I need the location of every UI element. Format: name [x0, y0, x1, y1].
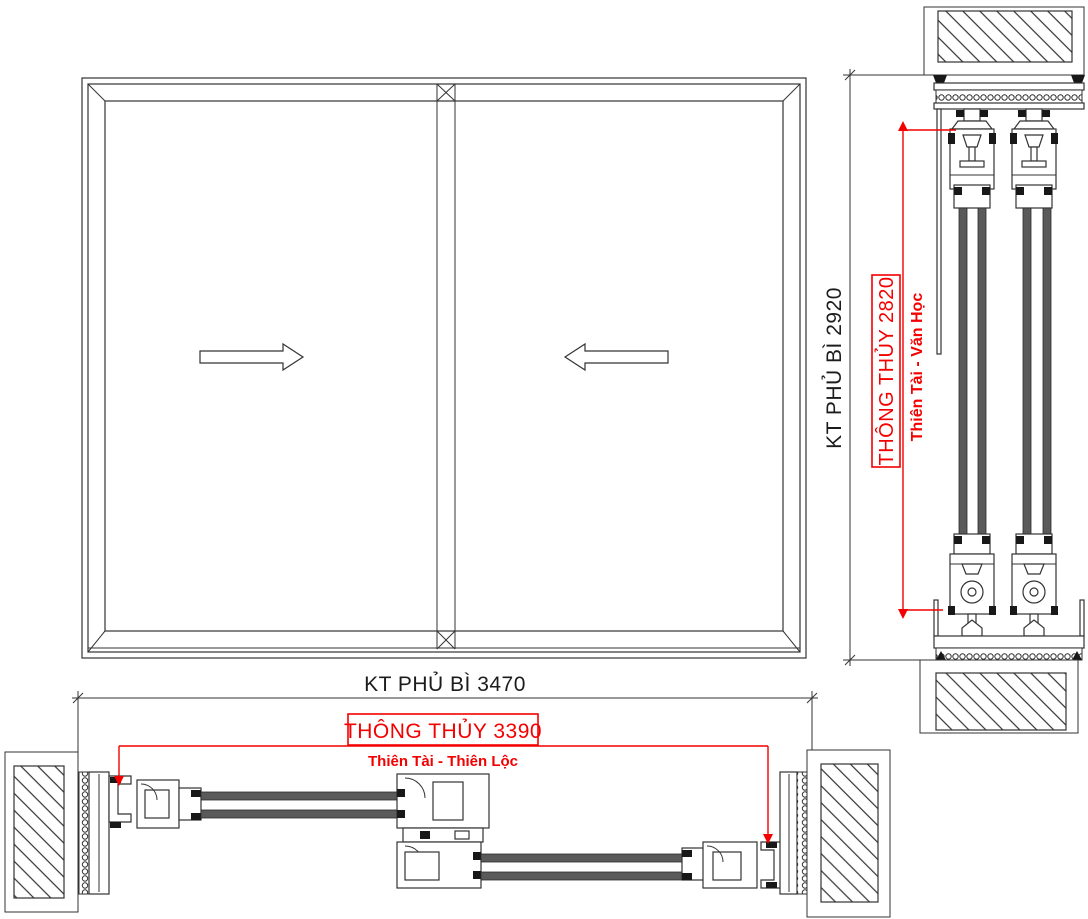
horizontal-section-view	[5, 750, 890, 917]
arrow-right-icon	[200, 344, 303, 370]
top-carriage-inner	[1010, 109, 1058, 208]
bottom-roller-inner	[1010, 534, 1058, 631]
frame-inner-opening	[105, 101, 783, 631]
wall-block-left	[5, 752, 78, 912]
frame-outer-edge	[82, 78, 806, 658]
glass-panes-section	[959, 208, 1051, 534]
clear-height-label: THÔNG THỦY 2820	[874, 276, 898, 465]
wall-block-top	[924, 7, 1084, 75]
meeting-stiles-interlock	[397, 774, 489, 888]
glass-panel-1	[201, 792, 397, 818]
technical-drawing-canvas: KT PHỦ BÌ 3470 THÔNG THỦY 3390 Thiên Tài…	[0, 0, 1088, 919]
wall-block-bottom	[920, 660, 1078, 733]
interlock-mullion	[437, 84, 455, 649]
glass-panel-2	[481, 854, 702, 880]
height-fengshui-label: Thiên Tài - Văn Học	[909, 293, 926, 442]
bottom-roller-outer	[948, 534, 996, 631]
vertical-section-view	[920, 7, 1085, 733]
height-dimension-clear: THÔNG THỦY 2820 Thiên Tài - Văn Học	[872, 121, 956, 619]
clear-width-label: THÔNG THỦY 3390	[344, 719, 542, 743]
right-leaf-stile	[682, 842, 757, 888]
top-carriage-outer	[948, 109, 996, 208]
elevation-view	[82, 78, 806, 658]
width-fengshui-label: Thiên Tài - Thiên Lộc	[368, 753, 518, 770]
overall-height-label: KT PHỦ BÌ 2920	[822, 287, 846, 449]
arrow-left-icon	[565, 344, 668, 370]
overall-width-label: KT PHỦ BÌ 3470	[364, 672, 526, 696]
wall-block-right	[807, 750, 890, 917]
frame-face	[88, 84, 800, 652]
sliding-door-drawing: KT PHỦ BÌ 3470 THÔNG THỦY 3390 Thiên Tài…	[0, 0, 1088, 919]
left-leaf-stile	[137, 780, 201, 828]
